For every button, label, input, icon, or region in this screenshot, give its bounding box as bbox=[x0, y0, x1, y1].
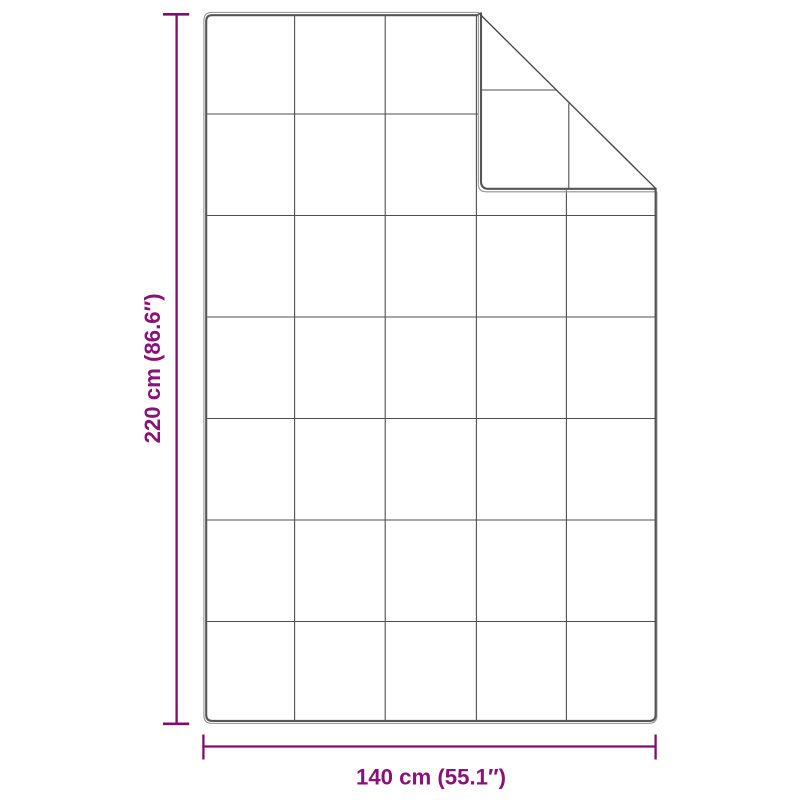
svg-text:140 cm (55.1″): 140 cm (55.1″) bbox=[356, 765, 506, 790]
svg-text:220 cm (86.6″): 220 cm (86.6″) bbox=[140, 293, 165, 443]
